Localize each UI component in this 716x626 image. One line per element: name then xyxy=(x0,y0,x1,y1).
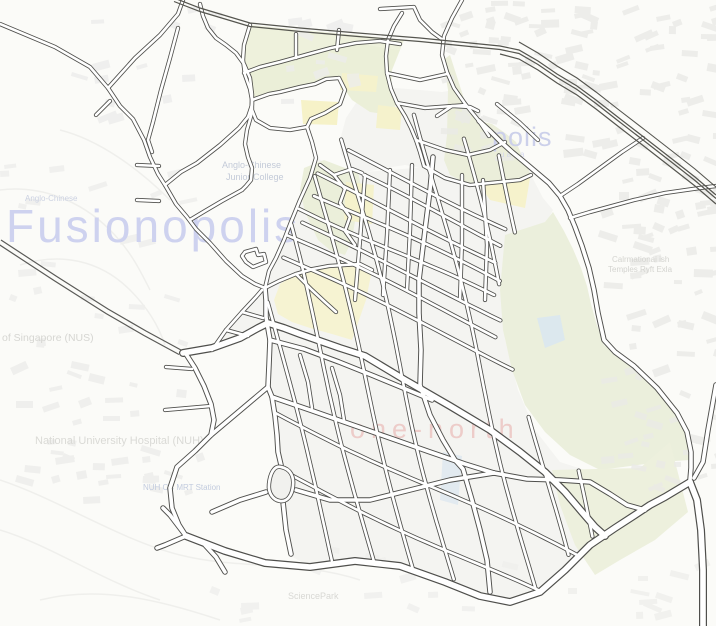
svg-text:Junior College: Junior College xyxy=(226,172,284,182)
svg-text:Anglo-Chinese: Anglo-Chinese xyxy=(25,194,78,203)
svg-text:Calrmationai ish: Calrmationai ish xyxy=(612,255,669,264)
svg-text:SciencePark: SciencePark xyxy=(288,591,339,601)
svg-text:National University Hospital (: National University Hospital (NUH) xyxy=(35,435,204,447)
svg-text:of Singapore (NUS): of Singapore (NUS) xyxy=(2,332,94,344)
svg-text:NUH CC MRT Station: NUH CC MRT Station xyxy=(143,483,221,492)
svg-text:Temples Ryft Exla: Temples Ryft Exla xyxy=(608,265,673,274)
svg-text:Fusionopolis: Fusionopolis xyxy=(6,200,300,252)
